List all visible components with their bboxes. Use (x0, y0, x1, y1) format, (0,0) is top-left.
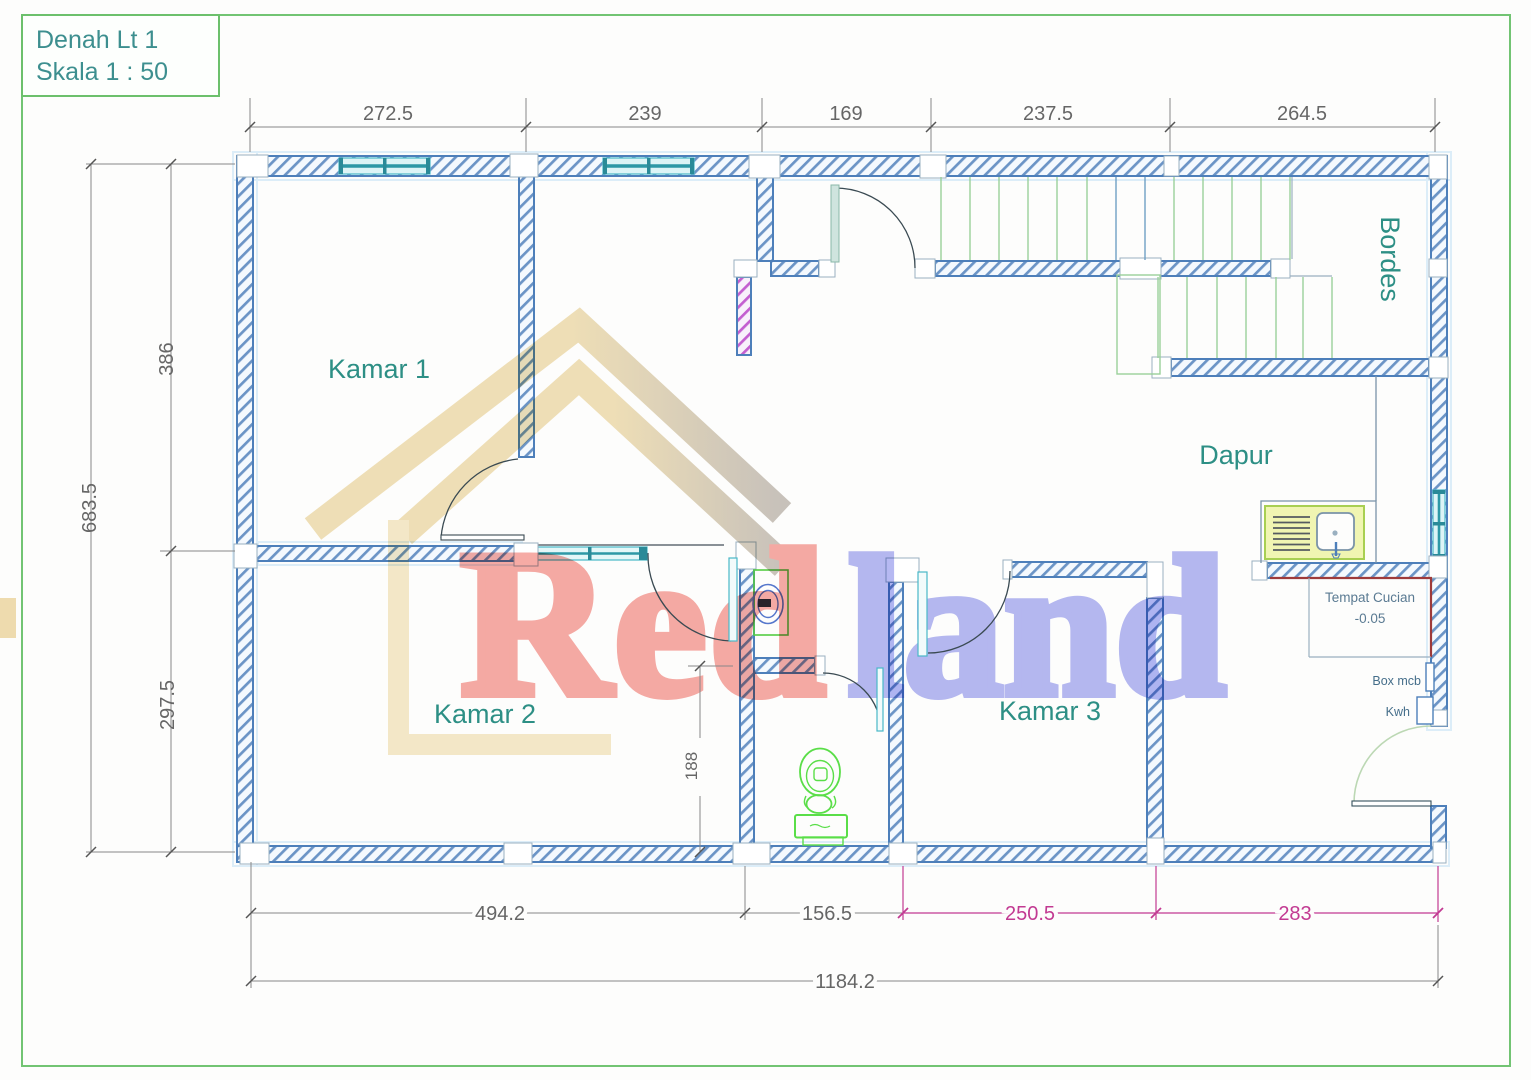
svg-text:Kamar 2: Kamar 2 (434, 699, 536, 729)
svg-text:Bordes: Bordes (1375, 216, 1405, 302)
svg-text:Box mcb: Box mcb (1372, 674, 1421, 688)
svg-text:-0.05: -0.05 (1355, 611, 1386, 626)
svg-text:Kamar 1: Kamar 1 (328, 354, 430, 384)
svg-text:Kamar 3: Kamar 3 (999, 696, 1101, 726)
svg-text:Kwh: Kwh (1386, 705, 1410, 719)
svg-text:Dapur: Dapur (1199, 440, 1273, 470)
svg-text:Denah Lt 1: Denah Lt 1 (36, 26, 158, 54)
svg-text:1184.2: 1184.2 (815, 971, 875, 993)
svg-text:283: 283 (1278, 903, 1311, 925)
svg-text:250.5: 250.5 (1005, 903, 1055, 925)
svg-text:Tempat Cucian: Tempat Cucian (1325, 590, 1415, 605)
svg-text:237.5: 237.5 (1023, 103, 1073, 125)
svg-text:Skala 1 : 50: Skala 1 : 50 (36, 58, 168, 86)
svg-text:188: 188 (682, 752, 701, 780)
svg-text:683.5: 683.5 (79, 483, 101, 533)
svg-text:297.5: 297.5 (157, 680, 179, 730)
svg-text:156.5: 156.5 (802, 903, 852, 925)
svg-text:239: 239 (628, 103, 661, 125)
svg-text:169: 169 (829, 103, 862, 125)
svg-text:386: 386 (156, 342, 178, 375)
svg-text:272.5: 272.5 (363, 103, 413, 125)
svg-text:494.2: 494.2 (475, 903, 525, 925)
svg-text:264.5: 264.5 (1277, 103, 1327, 125)
